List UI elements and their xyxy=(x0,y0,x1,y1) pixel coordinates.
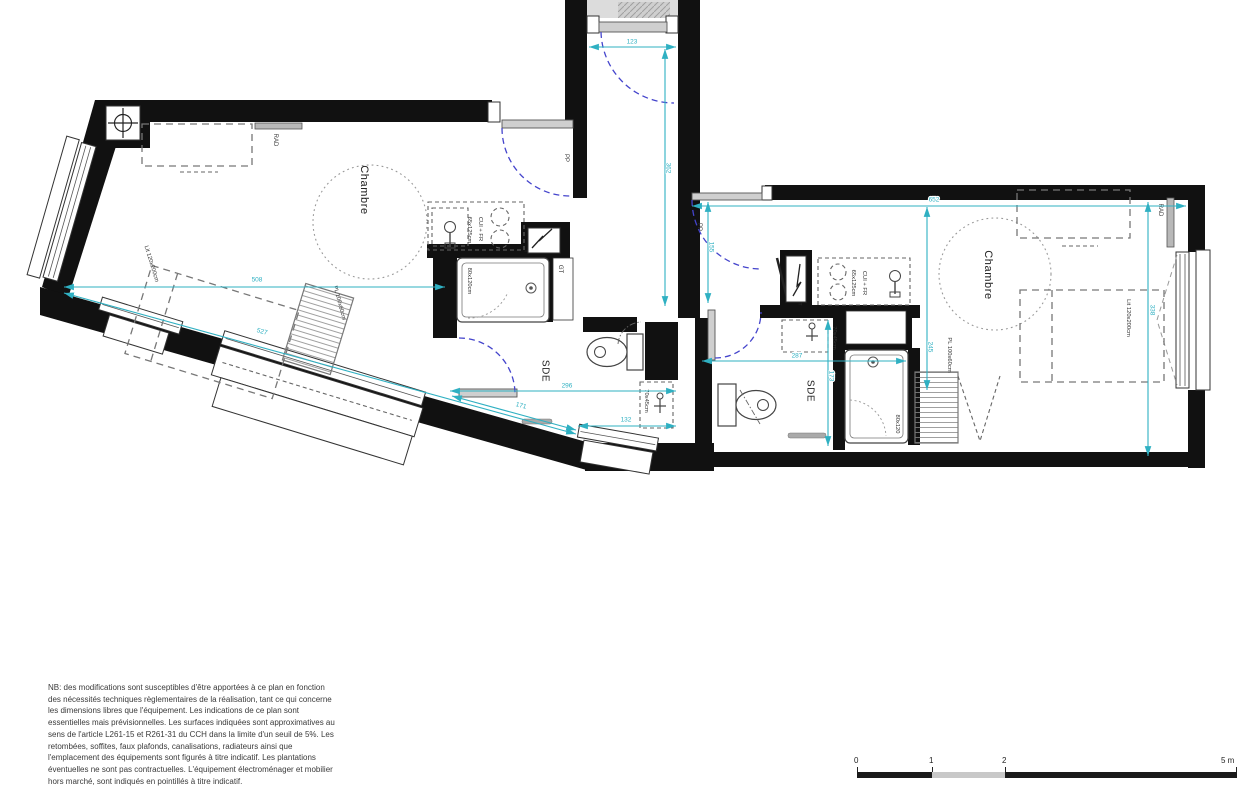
scale-label-1: 1 xyxy=(929,756,933,765)
electrical-panel xyxy=(786,256,806,302)
dim-362: 362 xyxy=(665,163,672,174)
duct-shaft xyxy=(846,311,906,344)
closet-label-right: PL 100x60cm xyxy=(946,337,952,372)
shower-size-left: 80x120cm xyxy=(466,268,472,295)
panel-label-left: T xyxy=(524,250,529,253)
room-label-left-bedroom: Chambre xyxy=(358,165,370,214)
towel-bar xyxy=(788,433,826,438)
kitchen-label-right: CUI + FR xyxy=(861,271,867,295)
dim-296: 296 xyxy=(562,383,573,390)
dim-652: 652 xyxy=(929,197,940,204)
east-window xyxy=(1157,250,1210,390)
toilet xyxy=(718,384,776,426)
dim-173: 173 xyxy=(828,371,835,382)
rotation-circle xyxy=(939,218,1051,330)
electrical-panel xyxy=(528,228,560,253)
kitchen-size-left: 65x125cm xyxy=(466,217,472,244)
room-label-left-bathroom: SDE xyxy=(540,360,551,382)
disclaimer-line: retombées, soffites, faux plafonds, cana… xyxy=(48,741,358,753)
dim-527: 527 xyxy=(256,327,269,337)
dim-123: 123 xyxy=(627,39,638,46)
bed-label-left: Lit 120x200cm xyxy=(143,245,160,283)
floor-plan-drawing: Chambre Chambre SDE SDE RAD RAD PP PP GT… xyxy=(0,0,1260,800)
room-label-right-bathroom: SDE xyxy=(805,380,816,402)
radiator xyxy=(1167,198,1174,247)
dim-508: 508 xyxy=(252,277,263,284)
dim-338: 338 xyxy=(1149,305,1156,316)
scale-segment xyxy=(1005,772,1237,778)
entry-door-label-right: PP xyxy=(696,223,702,231)
panel-label-right: T xyxy=(798,303,803,306)
disclaimer-line: sens de l'article L261-15 et R261-31 du … xyxy=(48,729,358,741)
radiator xyxy=(255,123,302,129)
crosshair-symbol-icon xyxy=(106,106,140,140)
duct-label: GT xyxy=(557,265,563,274)
landing-entry-door xyxy=(599,22,674,103)
disclaimer-text: NB: des modifications sont susceptibles … xyxy=(48,682,358,787)
washbasin xyxy=(782,320,828,352)
scale-bar: 0 1 2 5 m xyxy=(853,756,1245,782)
dim-132: 132 xyxy=(621,417,632,424)
disclaimer-line: NB: des modifications sont susceptibles … xyxy=(48,682,358,694)
dim-287: 287 xyxy=(792,353,803,360)
left-apartment xyxy=(125,123,673,428)
common-landing xyxy=(320,0,678,117)
dim-245: 245 xyxy=(927,342,934,353)
disclaimer-line: des nécessités techniques règlementaires… xyxy=(48,694,358,706)
bed-label-right: Lit 120x200cm xyxy=(1125,299,1131,337)
bed xyxy=(1020,290,1164,382)
scale-segment xyxy=(932,772,1005,778)
shower-size-right: 80x120 xyxy=(894,414,900,433)
disclaimer-line: hors marché, sont indiqués en pointillés… xyxy=(48,776,358,788)
doors xyxy=(459,22,788,397)
disclaimer-line: essentielles mais prévisionnelles. Les s… xyxy=(48,717,358,729)
scale-segment xyxy=(857,772,932,778)
closet xyxy=(915,372,1000,443)
disclaimer-line: les dimensions libres que l'équipement. … xyxy=(48,705,358,717)
left-apartment-entry-door xyxy=(502,120,573,196)
disclaimer-line: éventuelles ne sont pas contractuelles. … xyxy=(48,764,358,776)
right-bathroom-door xyxy=(708,310,761,360)
basin-size-left: 70x45cm xyxy=(643,389,649,413)
kitchenette xyxy=(428,202,524,250)
scale-label-0: 0 xyxy=(854,756,858,765)
kitchen-size-right: 65x125cm xyxy=(850,270,856,297)
scale-label-5m: 5 m xyxy=(1221,756,1234,765)
dim-155: 155 xyxy=(708,242,715,253)
kitchen-label-left: CUI + FR xyxy=(477,217,483,241)
scale-label-2: 2 xyxy=(1002,756,1006,765)
dim-171: 171 xyxy=(515,401,528,411)
wardrobe-outline xyxy=(142,124,252,166)
radiator-label-left: RAD xyxy=(272,134,278,147)
basin-size-right: 70x45cm xyxy=(831,326,837,350)
room-label-right-bedroom: Chambre xyxy=(982,250,994,299)
left-bathroom-door xyxy=(459,338,517,397)
entry-door-label-left: PP xyxy=(563,154,569,162)
disclaimer-line: l'emplacement des équipements sont figur… xyxy=(48,752,358,764)
closet xyxy=(282,283,353,374)
